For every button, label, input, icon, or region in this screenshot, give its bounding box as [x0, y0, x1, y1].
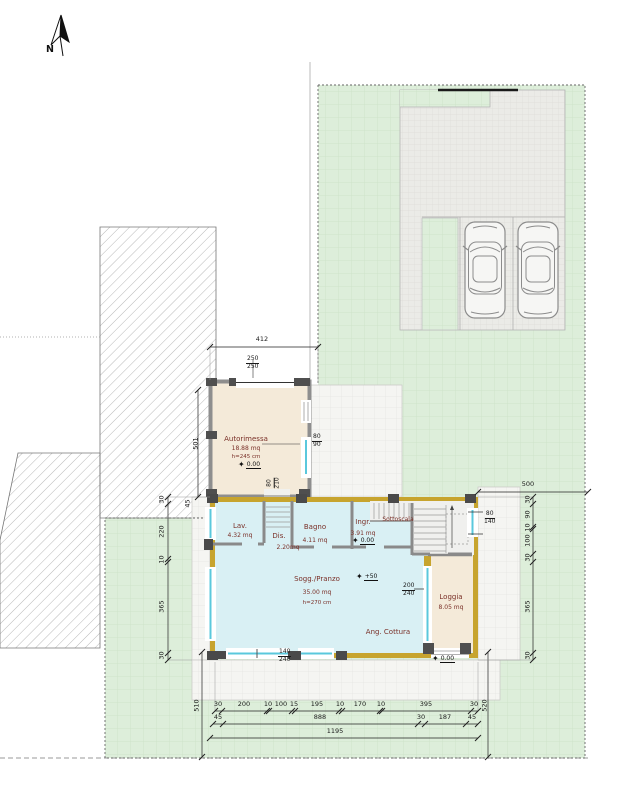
dim-b1-6: 10: [330, 701, 350, 708]
dim-b2-1: 888: [308, 714, 332, 721]
dim-b1-9: 395: [416, 701, 436, 708]
dim-b2-4: 45: [460, 714, 484, 721]
dim-b1-8: 10: [371, 701, 391, 708]
dim-left-1: 220: [159, 517, 166, 547]
room-lav: Lav.: [218, 523, 262, 530]
dim-b1-0: 30: [208, 701, 228, 708]
room-dis-area: 2.20mq: [271, 545, 305, 551]
room-sottoscala: Sottoscala: [374, 516, 422, 523]
room-autorimessa: Autorimessa: [208, 436, 284, 443]
level-icon: ✦: [352, 538, 359, 544]
site-plan: N Autorimessa 18.88 mq h=245 cm Lav. 4.3…: [0, 0, 640, 800]
room-autorimessa-height: h=245 cm: [208, 454, 284, 460]
dim-south-left: 510: [194, 691, 201, 721]
room-bagno: Bagno: [293, 524, 337, 531]
level-icon: ✦: [432, 656, 439, 662]
dim-corner-offset: 45: [185, 494, 192, 514]
level-living: ✦ +50: [356, 573, 378, 581]
room-loggia: Loggia: [428, 594, 474, 601]
dim-garage-window: 80 90: [312, 434, 322, 448]
dim-internal-door: 80 210: [267, 477, 281, 488]
room-soggiorno-area: 35.00 mq: [281, 590, 353, 596]
room-lav-area: 4.32 mq: [216, 533, 264, 539]
dim-right-4: 30: [525, 543, 532, 573]
level-outdoor: ✦ 0.00: [432, 655, 455, 663]
room-dis: Dis.: [265, 533, 293, 540]
dim-stair-window: 80 140: [484, 511, 495, 525]
dim-left-4: 30: [159, 641, 166, 671]
dim-b1-7: 170: [350, 701, 370, 708]
dim-b1-1: 200: [234, 701, 254, 708]
dim-left-2: 10: [159, 545, 166, 575]
dim-east-offset: 500: [498, 481, 558, 488]
dim-b2-0: 45: [206, 714, 230, 721]
dim-south-door: 140 240: [278, 649, 291, 663]
dim-b2-2: 30: [409, 714, 433, 721]
dim-right-5: 365: [525, 592, 532, 622]
dim-living-glazing: 200 240: [402, 583, 415, 597]
room-ang-cottura: Ang. Cottura: [352, 629, 424, 636]
dim-garage-front: 412: [212, 336, 312, 343]
dim-b2-3: 187: [433, 714, 457, 721]
room-autorimessa-area: 18.88 mq: [208, 446, 284, 452]
dim-south-right: 520: [482, 691, 489, 721]
level-icon: ✦: [238, 462, 245, 468]
dim-b1-5: 195: [307, 701, 327, 708]
dim-left-0: 30: [159, 485, 166, 515]
dim-bottom-total: 1195: [305, 728, 365, 735]
north-label: N: [46, 44, 54, 55]
room-bagno-area: 4.11 mq: [292, 538, 338, 544]
plan-graphics: [0, 0, 640, 800]
dim-b1-4: 15: [286, 701, 302, 708]
dim-left-3: 365: [159, 592, 166, 622]
dim-right-6: 30: [525, 641, 532, 671]
level-icon: ✦: [356, 574, 363, 580]
room-soggiorno: Sogg./Pranzo: [279, 576, 355, 583]
room-soggiorno-height: h=270 cm: [283, 600, 351, 606]
dim-hatch-side: 501: [193, 424, 200, 464]
dim-garage-door: 250 250: [246, 356, 259, 370]
room-loggia-area: 8.05 mq: [428, 605, 474, 611]
level-garage: ✦ 0.00: [238, 461, 261, 469]
level-ingresso: ✦ 0.00: [352, 537, 375, 545]
